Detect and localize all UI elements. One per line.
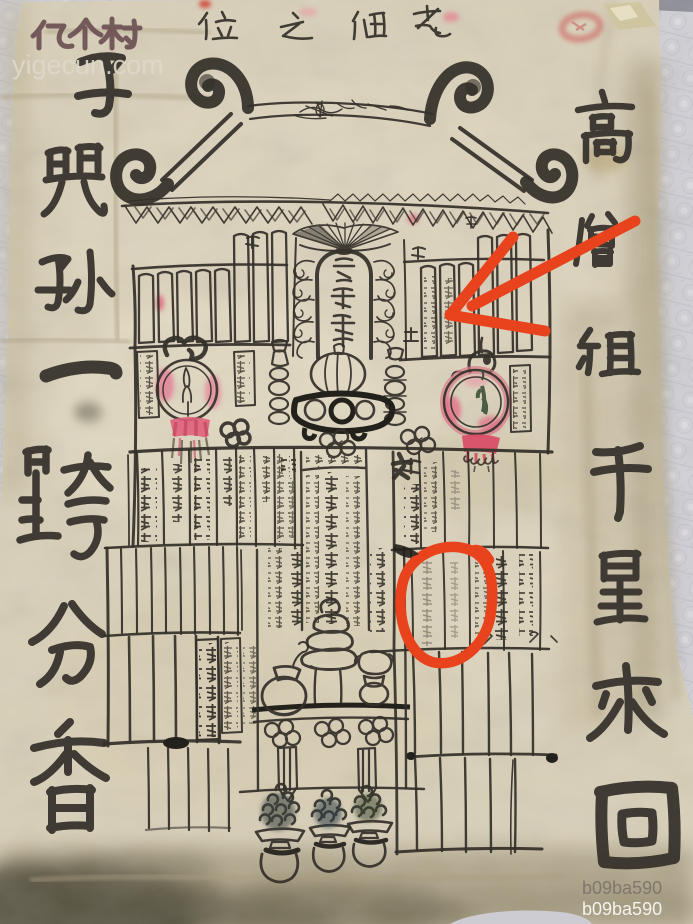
svg-text:b09ba590: b09ba590 bbox=[582, 878, 662, 898]
svg-text:b09ba590: b09ba590 bbox=[582, 899, 662, 919]
svg-text:yigecun.com: yigecun.com bbox=[12, 50, 164, 80]
